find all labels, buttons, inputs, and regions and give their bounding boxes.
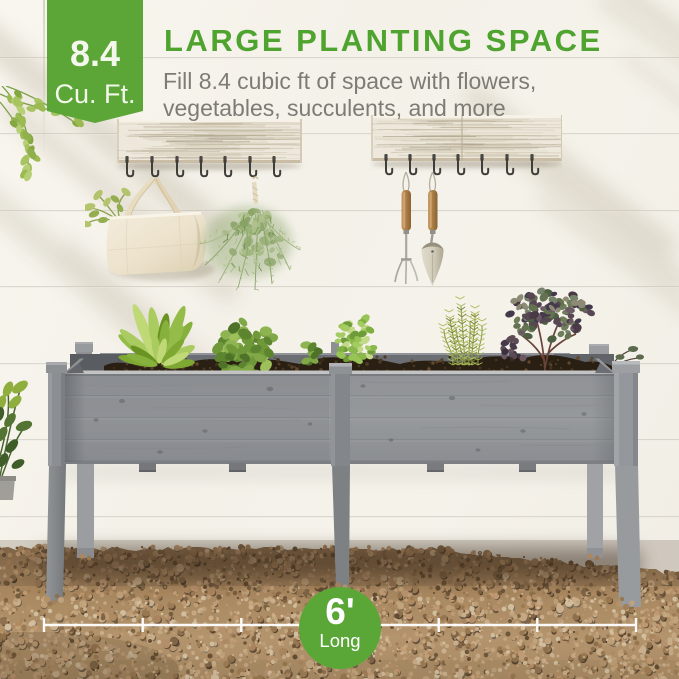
svg-text:8.4: 8.4: [70, 33, 120, 74]
svg-text:Cu. Ft.: Cu. Ft.: [54, 79, 135, 109]
